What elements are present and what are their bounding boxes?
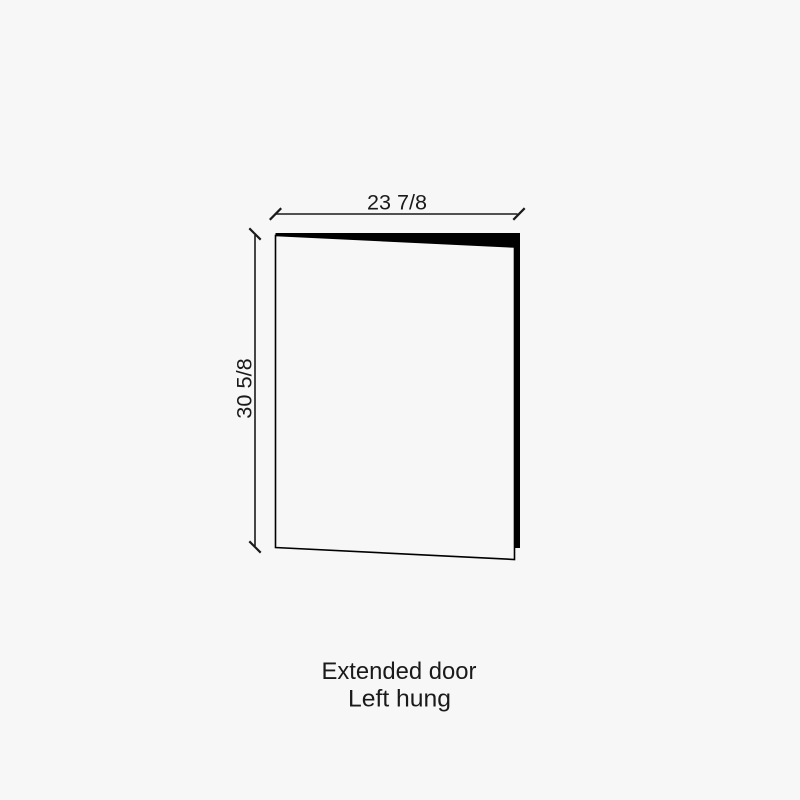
- svg-text:Left hung: Left hung: [348, 686, 451, 713]
- svg-text:30 5/8: 30 5/8: [233, 358, 257, 419]
- svg-text:23 7/8: 23 7/8: [367, 191, 427, 215]
- svg-text:Extended door: Extended door: [322, 658, 477, 685]
